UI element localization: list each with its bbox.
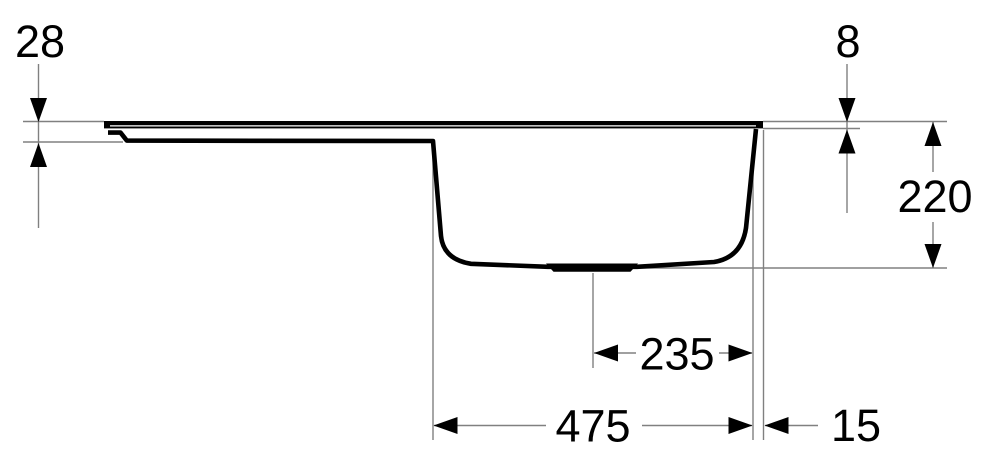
dimension-lines [39,64,934,426]
arrow-left-235 [594,345,618,362]
arrow-left-15 [765,417,789,434]
sink-body-outline [108,129,756,267]
label-220: 220 [897,171,972,222]
arrow-up-220 [925,122,942,146]
sink-rim [104,121,763,128]
drain-flange [546,264,638,272]
arrow-down-220 [925,244,942,268]
arrow-down-8 [839,98,856,122]
arrow-up-8 [839,130,856,154]
arrow-up-28 [30,143,47,167]
arrow-right-235 [729,345,753,362]
arrow-left-475 [434,417,458,434]
label-15: 15 [831,400,881,451]
arrow-right-475 [729,417,753,434]
drawing-canvas: 28 8 220 235 475 15 [0,0,992,475]
dimension-labels: 28 8 220 235 475 15 [15,16,973,452]
label-235: 235 [639,329,714,380]
arrow-down-28 [30,98,47,122]
label-475: 475 [555,401,630,452]
label-28: 28 [15,16,65,67]
label-8: 8 [835,16,860,67]
sink-dimension-drawing: 28 8 220 235 475 15 [0,0,992,475]
extension-lines [23,122,947,441]
